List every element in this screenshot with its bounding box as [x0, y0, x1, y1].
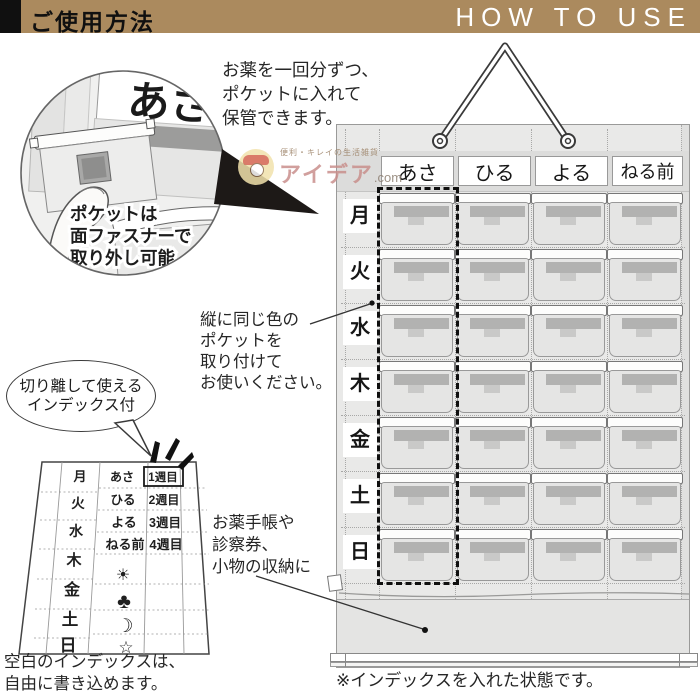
pocket-body	[533, 314, 605, 357]
column-header-asa: あさ	[381, 156, 454, 186]
pocket-tab	[484, 217, 500, 225]
pocket-slot	[622, 262, 677, 273]
pocket	[533, 361, 605, 413]
pocket	[457, 249, 529, 301]
column-header-hiru: ひる	[458, 156, 531, 186]
removable-caption-line: ポケットは	[70, 204, 158, 224]
pocket-body	[533, 538, 605, 581]
pocket-tab	[484, 273, 500, 281]
sheet-day: 木	[65, 551, 82, 569]
store-note: お薬を一回分ずつ、 ポケットに入れて 保管できます。	[222, 58, 379, 130]
zoom-circle-scene: あさ ポケットは 面ファスナーで	[18, 68, 228, 278]
vertical-note: 縦に同じ色の ポケットを 取り付けて お使いください。	[200, 310, 332, 394]
pocket-slot	[546, 318, 601, 329]
pocket-tab	[636, 217, 652, 225]
page-title-jp: ご使用方法	[30, 3, 155, 37]
pocket-tab	[636, 329, 652, 337]
sheet-symbol-clover: ♣	[117, 590, 131, 613]
pocket	[533, 473, 605, 525]
zoom-circle: あさ ポケットは 面ファスナーで	[18, 68, 228, 278]
flap-clip	[29, 138, 38, 148]
sheet-week: 2週目	[149, 492, 180, 507]
day-label: 日	[343, 535, 377, 569]
velcro-patch-inner	[81, 156, 106, 180]
pocket-slot	[622, 542, 677, 553]
pocket-slot	[470, 542, 525, 553]
pocket-body	[457, 370, 529, 413]
removable-caption-line: 取り外し可能	[70, 248, 175, 268]
pocket-body	[533, 202, 605, 245]
pocket-slot	[622, 318, 677, 329]
pocket-slot	[546, 486, 601, 497]
pocket	[533, 529, 605, 581]
pocket-body	[457, 314, 529, 357]
page-title-en: HOW TO USE	[455, 2, 692, 33]
removable-caption-line: 面ファスナーで	[70, 226, 191, 246]
pocket-body	[533, 426, 605, 469]
header-bar: ご使用方法 HOW TO USE	[0, 0, 700, 33]
sheet-time: ねる前	[105, 537, 144, 552]
sheet-week: 3週目	[149, 515, 181, 530]
page: ご使用方法 HOW TO USE あさ	[0, 0, 700, 700]
bottom-seam	[337, 585, 691, 599]
pocket	[457, 305, 529, 357]
pocket	[609, 473, 681, 525]
pocket-body	[457, 202, 529, 245]
pocket	[533, 305, 605, 357]
sheet-day: 月	[72, 469, 86, 484]
pocket	[457, 417, 529, 469]
pocket	[533, 249, 605, 301]
pocket-slot	[470, 486, 525, 497]
pocket-body	[609, 258, 681, 301]
header-accent-square	[0, 0, 21, 33]
pocket-slot	[470, 262, 525, 273]
pocket	[457, 193, 529, 245]
speech-bubble: 切り離して使える インデックス付	[6, 360, 156, 432]
rod-end-cap	[679, 653, 680, 667]
pocket-slot	[622, 430, 677, 441]
pocket-tab	[560, 385, 576, 393]
pocket-tab	[636, 553, 652, 561]
flap-clip	[146, 119, 155, 129]
day-label: 火	[343, 255, 377, 289]
hanging-rod-sleeve	[330, 662, 698, 667]
pocket-slot	[622, 486, 677, 497]
sheet-week: 4週目	[149, 537, 182, 552]
sheet-symbol-sun: ☀	[116, 567, 130, 584]
column-header-yoru: よる	[535, 156, 608, 186]
pocket-body	[533, 370, 605, 413]
logo-figure	[250, 163, 264, 177]
side-tab	[327, 574, 343, 592]
sheet-time: ひる	[110, 493, 135, 507]
pocket-slot	[470, 206, 525, 217]
pocket-body	[457, 426, 529, 469]
day-label: 月	[343, 199, 377, 233]
blank-index-note: 空白のインデックスは、 自由に書き込めます。	[4, 651, 185, 695]
pocket-tab	[560, 217, 576, 225]
pocket-slot	[622, 374, 677, 385]
pocket-slot	[470, 430, 525, 441]
pocket-slot	[470, 318, 525, 329]
pocket-slot	[546, 206, 601, 217]
sheet-day: 火	[71, 496, 85, 511]
pocket-body	[457, 482, 529, 525]
hanging-rod	[330, 653, 698, 662]
pocket-tab	[484, 385, 500, 393]
pocket	[609, 417, 681, 469]
pocket-tab	[560, 553, 576, 561]
day-label: 金	[343, 423, 377, 457]
day-label: 土	[343, 479, 377, 513]
pocket-slot	[546, 374, 601, 385]
column-header-band: あさ ひる よる ねる前	[337, 151, 689, 192]
pocket-tab	[484, 497, 500, 505]
pocket-body	[609, 314, 681, 357]
pocket	[533, 417, 605, 469]
pocket-body	[533, 482, 605, 525]
watermark-logo	[238, 149, 274, 185]
day-label: 水	[343, 311, 377, 345]
pocket-tab	[560, 441, 576, 449]
pocket	[533, 193, 605, 245]
pocket-body	[609, 538, 681, 581]
pocket-tab	[484, 553, 500, 561]
pocket-tab	[636, 273, 652, 281]
pocket-tab	[484, 329, 500, 337]
pocket-body	[533, 258, 605, 301]
pocket	[609, 529, 681, 581]
pocket-slot	[546, 430, 601, 441]
state-note: ※インデックスを入れた状態です。	[336, 670, 603, 692]
sheet-day: 金	[63, 580, 81, 599]
day-label: 木	[343, 367, 377, 401]
pocket-tab	[636, 497, 652, 505]
logo-awning	[243, 155, 269, 165]
pocket-body	[609, 426, 681, 469]
pocket-tab	[560, 329, 576, 337]
storage-note: お薬手帳や 診察券、 小物の収納に	[212, 512, 311, 578]
pocket-slot	[546, 262, 601, 273]
column-header-nerumae: ねる前	[612, 156, 683, 186]
pocket-tab	[484, 441, 500, 449]
sheet-time: あさ	[110, 470, 134, 484]
pocket-tab	[636, 441, 652, 449]
pocket-slot	[546, 542, 601, 553]
pocket-body	[457, 258, 529, 301]
wedge-pointer	[214, 149, 319, 214]
sheet-day: 水	[69, 523, 84, 539]
pocket-tab	[560, 497, 576, 505]
pocket	[609, 305, 681, 357]
rod-end-cap	[345, 653, 346, 667]
pocket-tab	[636, 385, 652, 393]
pocket	[609, 361, 681, 413]
sheet-week: 1週目	[148, 470, 177, 484]
pocket-body	[609, 482, 681, 525]
bottom-pocket	[337, 599, 689, 654]
pocket	[609, 193, 681, 245]
pocket	[609, 249, 681, 301]
pocket	[457, 473, 529, 525]
sheet-symbol-moon: ☽	[116, 616, 133, 637]
pocket-body	[457, 538, 529, 581]
sheet-time: よる	[111, 515, 137, 530]
pocket	[457, 361, 529, 413]
organizer-panel: あさ ひる よる ねる前 月火水木金土日	[336, 124, 690, 668]
sheet-day: 土	[62, 609, 79, 629]
pocket-body	[609, 370, 681, 413]
index-sheet: 月 火 水 木 金 土 日 あさ ひる よる ねる前 1週目 2週目 3週目 4…	[10, 448, 214, 662]
pocket-slot	[470, 374, 525, 385]
pocket-slot	[622, 206, 677, 217]
same-color-column-highlight	[377, 187, 459, 585]
pocket-body	[609, 202, 681, 245]
pocket-tab	[560, 273, 576, 281]
pocket	[457, 529, 529, 581]
